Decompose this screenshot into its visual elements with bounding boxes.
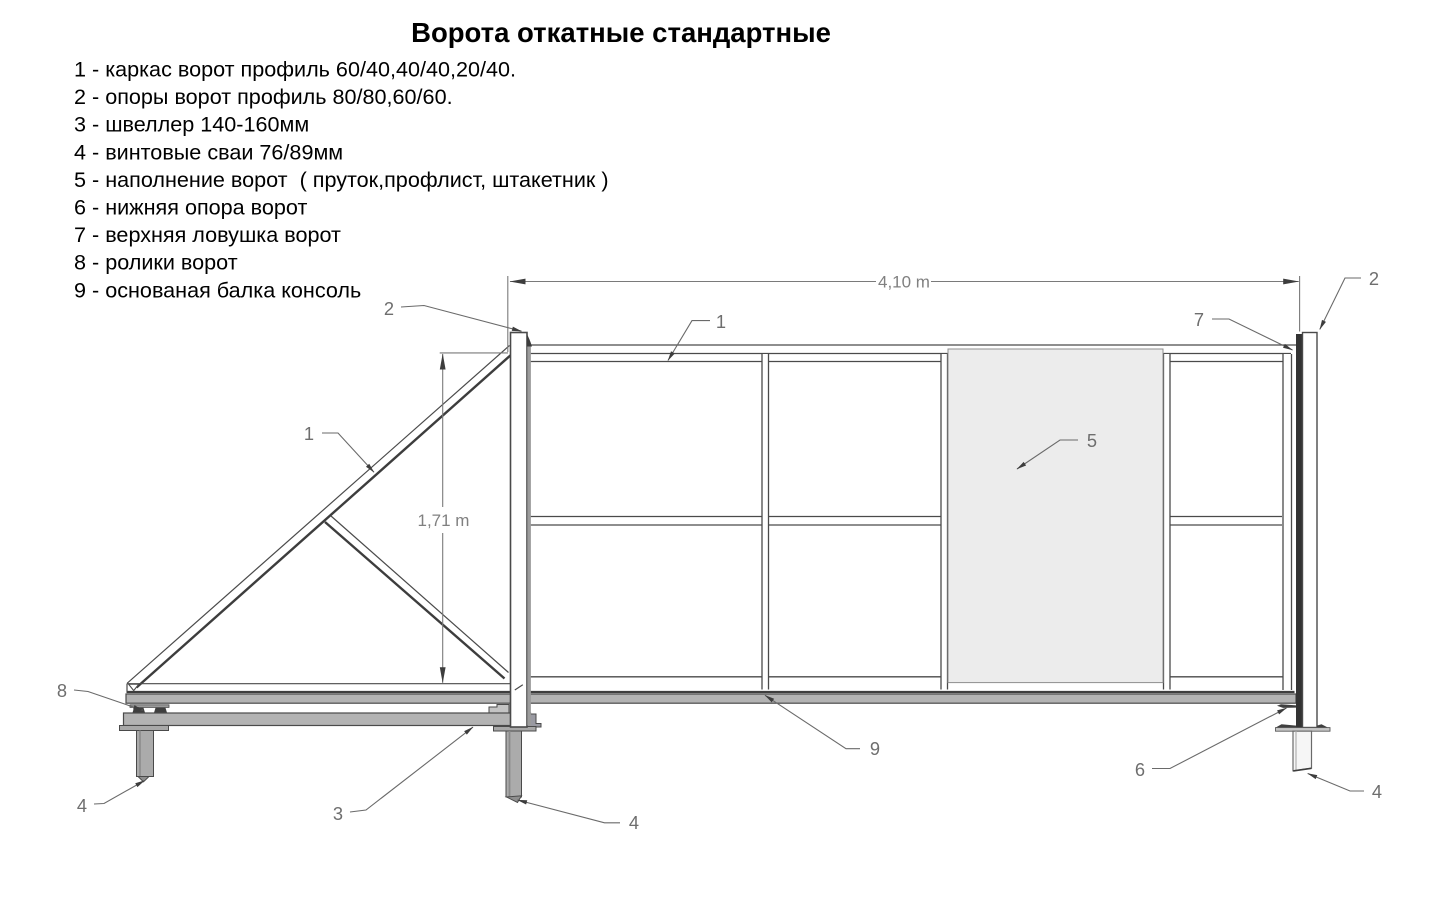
svg-text:7 - верхняя ловушка ворот: 7 - верхняя ловушка ворот xyxy=(74,222,341,247)
svg-text:1: 1 xyxy=(716,311,726,332)
svg-text:2: 2 xyxy=(1369,268,1379,289)
svg-text:Ворота откатные стандартные: Ворота откатные стандартные xyxy=(411,17,831,48)
svg-text:3 - швеллер 140-160мм: 3 - швеллер 140-160мм xyxy=(74,112,309,137)
svg-text:1: 1 xyxy=(304,423,314,444)
svg-text:8 - ролики ворот: 8 - ролики ворот xyxy=(74,250,238,275)
svg-text:2: 2 xyxy=(384,298,394,319)
svg-text:4: 4 xyxy=(77,795,87,816)
svg-text:1 - каркас ворот профиль 60/40: 1 - каркас ворот профиль 60/40,40/40,20/… xyxy=(74,57,516,82)
svg-text:4: 4 xyxy=(629,812,639,833)
svg-text:9: 9 xyxy=(870,738,880,759)
svg-text:4: 4 xyxy=(1372,781,1382,802)
svg-text:8: 8 xyxy=(57,680,67,701)
svg-text:6 - нижняя опора ворот: 6 - нижняя опора ворот xyxy=(74,195,307,220)
svg-text:6: 6 xyxy=(1135,759,1145,780)
svg-text:7: 7 xyxy=(1194,309,1204,330)
svg-text:9 - основаная балка консоль: 9 - основаная балка консоль xyxy=(74,277,361,302)
svg-text:4 - винтовые сваи 76/89мм: 4 - винтовые сваи 76/89мм xyxy=(74,139,343,164)
svg-text:3: 3 xyxy=(333,803,343,824)
svg-text:2 - опоры ворот профиль 80/80,: 2 - опоры ворот профиль 80/80,60/60. xyxy=(74,84,453,109)
svg-text:4,10 m: 4,10 m xyxy=(878,273,930,292)
svg-text:5: 5 xyxy=(1087,430,1097,451)
svg-text:1,71 m: 1,71 m xyxy=(418,511,470,530)
svg-text:5 - наполнение ворот ( пруток: 5 - наполнение ворот ( пруток,профлист, … xyxy=(74,167,609,192)
